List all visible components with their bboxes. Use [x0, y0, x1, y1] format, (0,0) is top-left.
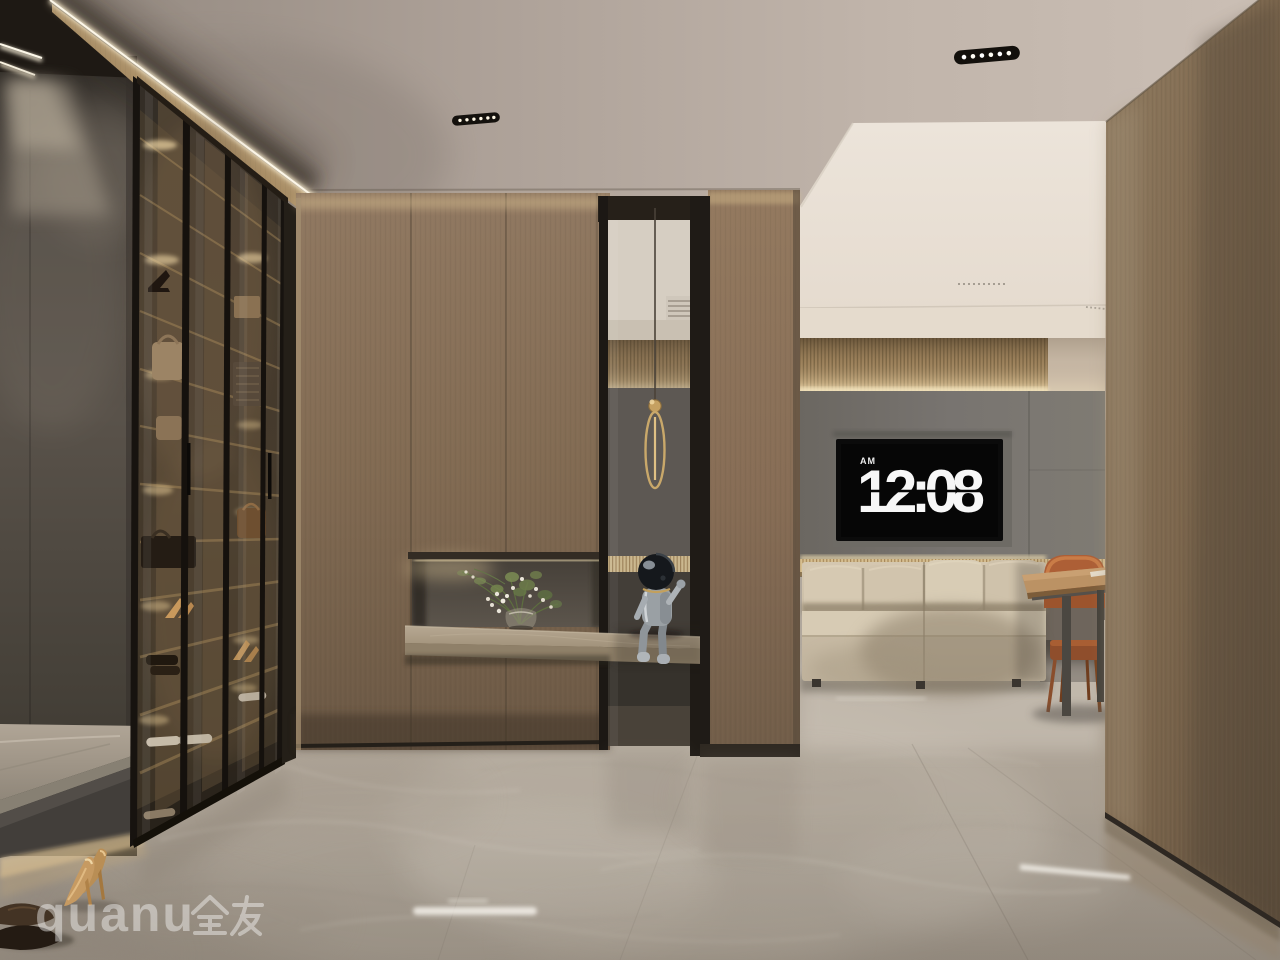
svg-text:quanu: quanu [35, 886, 195, 942]
